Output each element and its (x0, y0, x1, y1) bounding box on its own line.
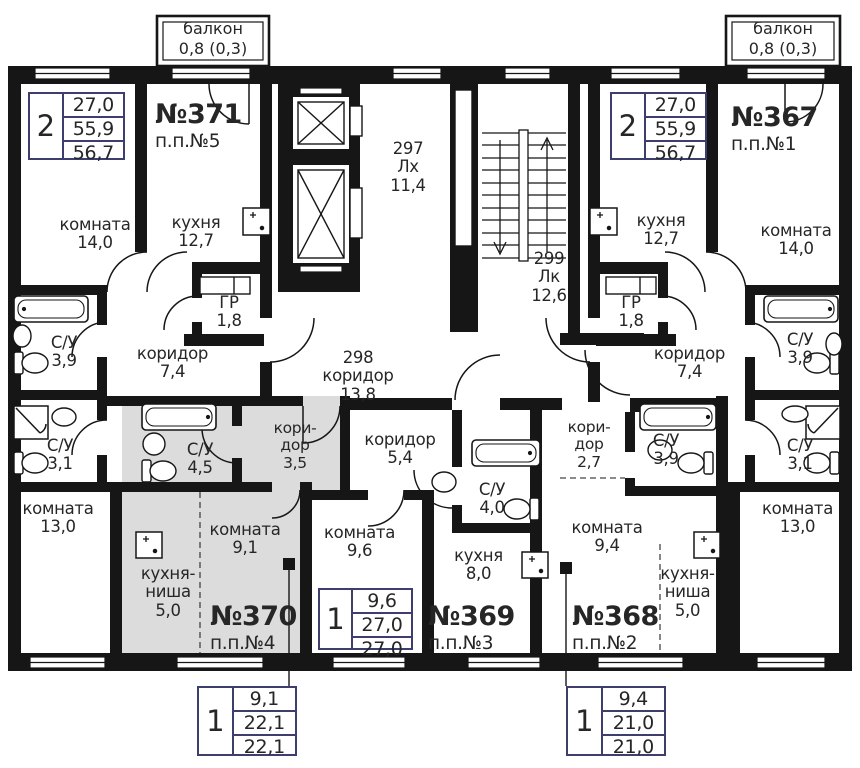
rooms-count: 2 (612, 94, 644, 158)
room-label-komnata13-left: комната13,0 (12, 500, 104, 537)
room-label-koridor-right: коридор7,4 (632, 345, 747, 382)
room-label-kuhnya80: кухня8,0 (436, 547, 521, 584)
room-label-su40: С/У4,0 (466, 481, 518, 518)
staircase (482, 130, 566, 261)
room-label-komnata94: комната9,4 (562, 519, 652, 556)
room-label-su31-right: С/У3,1 (774, 437, 826, 474)
apartment-371-stats-table: 2 27,0 55,9 56,7 (28, 92, 125, 160)
room-label-komnata13-right: комната13,0 (750, 500, 845, 537)
apartment-371-label[interactable]: №371 п.п.№5 (155, 101, 242, 152)
room-label-komnata14-right: комната14,0 (742, 222, 850, 259)
room-label-su31-left: С/У3,1 (34, 437, 86, 474)
apartment-370-stats-table: 1 9,1 22,1 22,1 (197, 686, 297, 756)
room-label-komnata91: комната9,1 (200, 521, 290, 558)
lift-hall-label: 297 Лх 11,4 (382, 140, 434, 195)
room-label-su39-left: С/У3,9 (38, 334, 90, 371)
room-label-nisha-left: кухня- ниша 5,0 (128, 565, 208, 620)
room-label-gr-right: ГР1,8 (607, 294, 655, 331)
apartment-368-stats-table: 1 9,4 21,0 21,0 (566, 686, 666, 756)
room-label-koridor27: кори- дор 2,7 (558, 419, 620, 471)
rooms-count: 2 (30, 94, 62, 158)
service-shaft (455, 90, 472, 246)
room-label-komnata96: комната9,6 (312, 524, 407, 561)
room-label-koridor35: кори- дор 3,5 (262, 420, 328, 472)
room-label-gr-left: ГР1,8 (205, 294, 253, 331)
rooms-count: 1 (199, 688, 232, 754)
room-label-koridor-left: коридор7,4 (115, 345, 230, 382)
balcony-left-label: балкон0,8 (0,3) (157, 19, 269, 59)
apartment-367-label[interactable]: №367 п.п.№1 (731, 104, 818, 155)
common-corridor-label: 298 коридор 13,8 (304, 349, 412, 404)
room-label-koridor54: коридор5,4 (345, 431, 455, 468)
room-label-su39-mid: С/У3,9 (640, 432, 692, 469)
room-label-su39-right: С/У3,9 (774, 331, 826, 368)
floor-plan: балкон0,8 (0,3) балкон0,8 (0,3) №371 п.п… (0, 0, 860, 768)
rooms-count: 1 (320, 590, 351, 648)
balcony-right-label: балкон0,8 (0,3) (726, 19, 840, 59)
room-label-kuhnya-right: кухня12,7 (616, 212, 706, 249)
room-label-komnata14-left: комната14,0 (40, 216, 150, 253)
room-label-nisha-right: кухня- ниша 5,0 (650, 565, 725, 620)
apartment-369-stats-table: 1 9,6 27,0 27,0 (318, 588, 413, 650)
apartment-367-stats-table: 2 27,0 55,9 56,7 (610, 92, 707, 160)
room-label-kuhnya-left: кухня12,7 (150, 214, 242, 251)
apartment-368-label[interactable]: №368 п.п.№2 (572, 603, 659, 654)
room-label-su45: С/У4,5 (176, 441, 224, 478)
stairwell-label: 299 Лк 12,6 (518, 250, 580, 305)
apartment-369-label[interactable]: №369 п.п.№3 (428, 603, 515, 654)
rooms-count: 1 (568, 688, 601, 754)
apartment-370-label[interactable]: №370 п.п.№4 (210, 603, 297, 654)
